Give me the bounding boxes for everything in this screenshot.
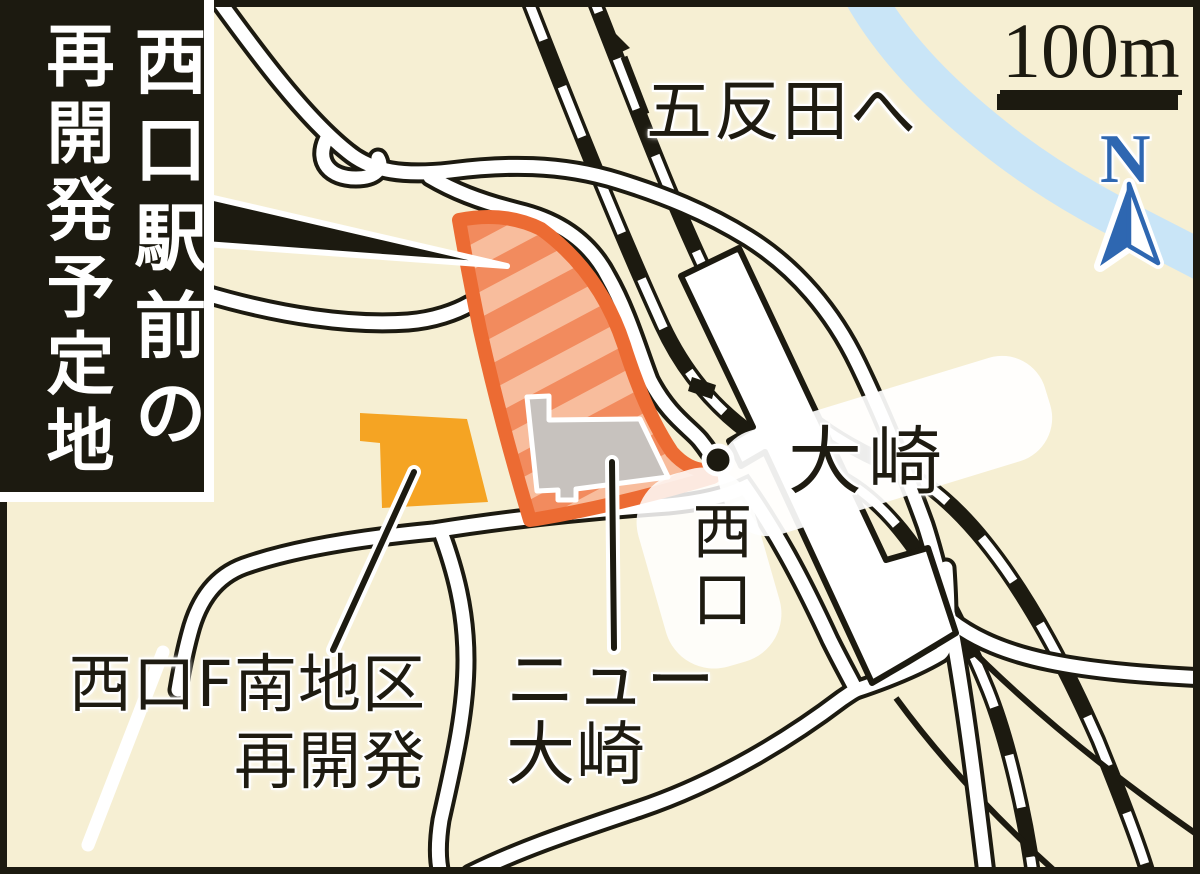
map-title-line2: 再開発予定地 xyxy=(24,20,123,482)
compass-north-letter: N xyxy=(1100,120,1151,200)
label-new-osaki-line1: ニュー xyxy=(506,644,716,718)
label-osaki-station: 大崎 xyxy=(788,402,948,509)
label-west-exit: 西口 xyxy=(674,500,761,636)
new-osaki-leader-line xyxy=(612,462,614,648)
label-new-osaki: ニュー 大崎 xyxy=(506,644,716,792)
label-west-f-district: 西口F南地区 再開発 xyxy=(34,646,426,800)
label-to-gotanda: 五反田へ xyxy=(646,58,918,154)
label-new-osaki-line2: 大崎 xyxy=(506,718,716,792)
label-west-f-district-line2: 再開発 xyxy=(34,723,426,800)
scale-bar xyxy=(997,94,1178,110)
west-exit-dot xyxy=(704,446,732,474)
scale-label: 100m xyxy=(1000,12,1182,95)
map-title-line1: 西口駅前の xyxy=(112,24,217,464)
label-west-f-district-line1: 西口F南地区 xyxy=(34,646,426,723)
map-title-box: 西口駅前の 再開発予定地 xyxy=(0,0,214,502)
map-figure: 西口駅前の 再開発予定地 五反田へ 大崎 西口 ニュー 大崎 西口F南地区 再開… xyxy=(0,0,1200,874)
